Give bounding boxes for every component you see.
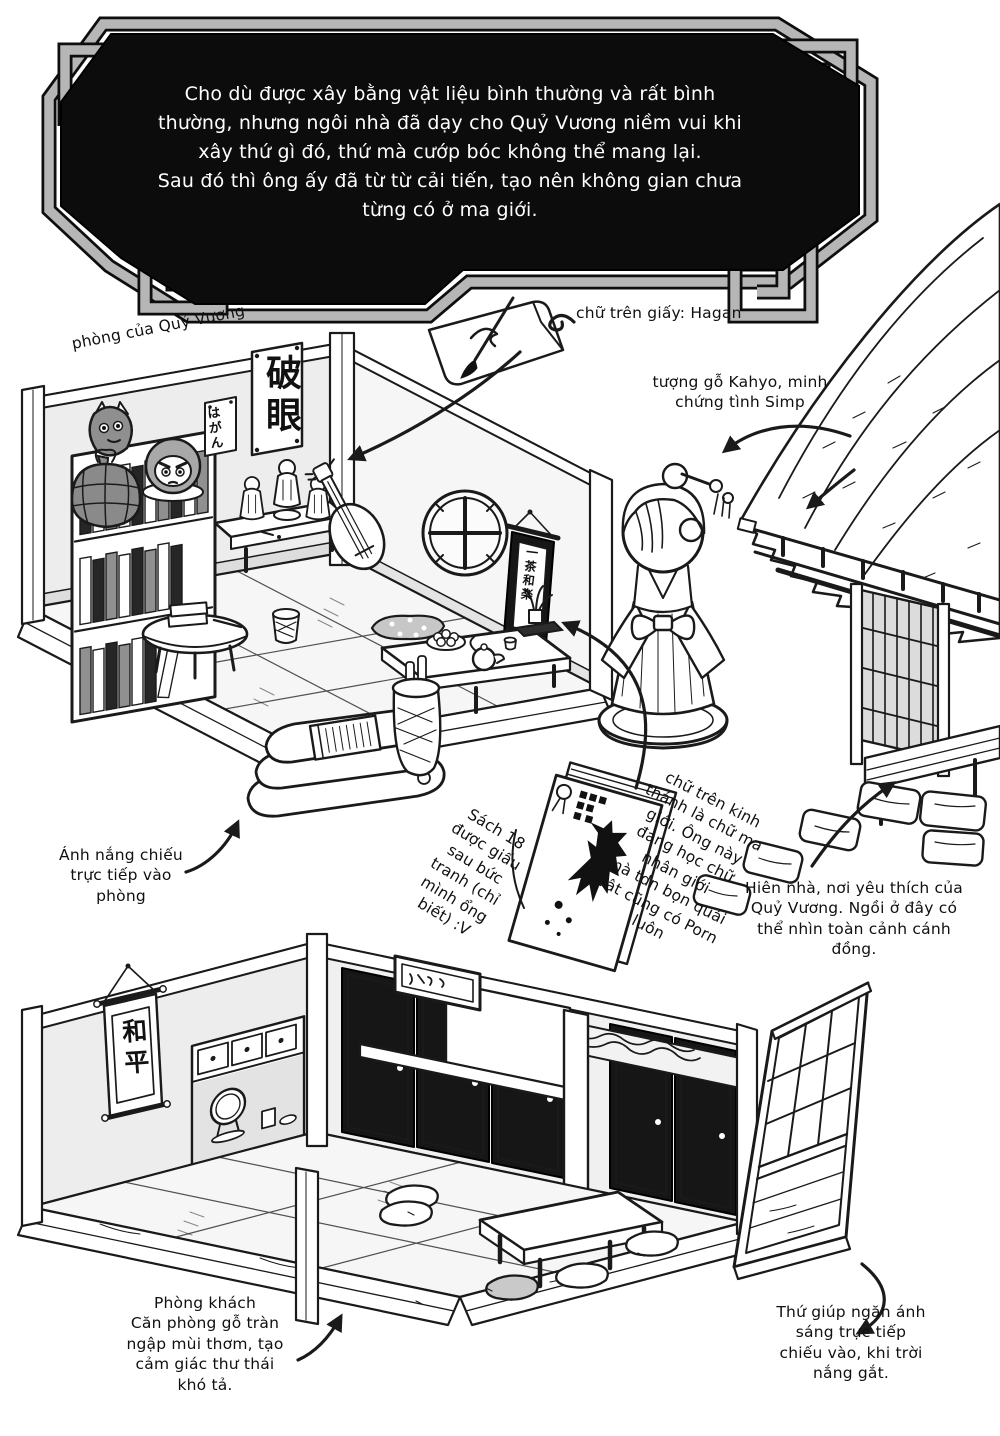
label-porch-note: Hiên nhà, nơi yêu thích của Quỷ Vương. N… xyxy=(740,878,968,960)
hagan-scroll-text: 破眼 xyxy=(262,354,298,438)
label-living-room-note: Phòng khách Căn phòng gỗ tràn ngập mùi t… xyxy=(86,1293,324,1395)
banner-text: Cho dù được xây bằng vật liệu bình thườn… xyxy=(143,80,757,224)
label-screen-note: Thứ giúp ngăn ánh sáng trực tiếp chiếu v… xyxy=(746,1302,956,1384)
daruma-doll-icon xyxy=(143,439,203,501)
door-panel xyxy=(734,983,871,1279)
waste-bin-icon xyxy=(273,609,299,643)
shoji-door-illustration xyxy=(718,975,1000,1290)
thatched-roof xyxy=(741,204,1000,642)
manga-page: Cho dù được xây bằng vật liệu bình thườn… xyxy=(0,0,1000,1436)
peace-scroll-text: 和平 xyxy=(120,1017,149,1081)
round-window xyxy=(423,491,507,575)
living-room-illustration xyxy=(10,922,770,1334)
teacup-icon xyxy=(505,638,517,650)
label-sunlight-note: Ánh nắng chiếu trực tiếp vào phòng xyxy=(46,845,196,906)
label-paper-note: chữ trên giấy: Hagan xyxy=(576,303,806,323)
label-statue-note: tượng gỗ Kahyo, minh chứng tình Simp xyxy=(645,372,835,413)
